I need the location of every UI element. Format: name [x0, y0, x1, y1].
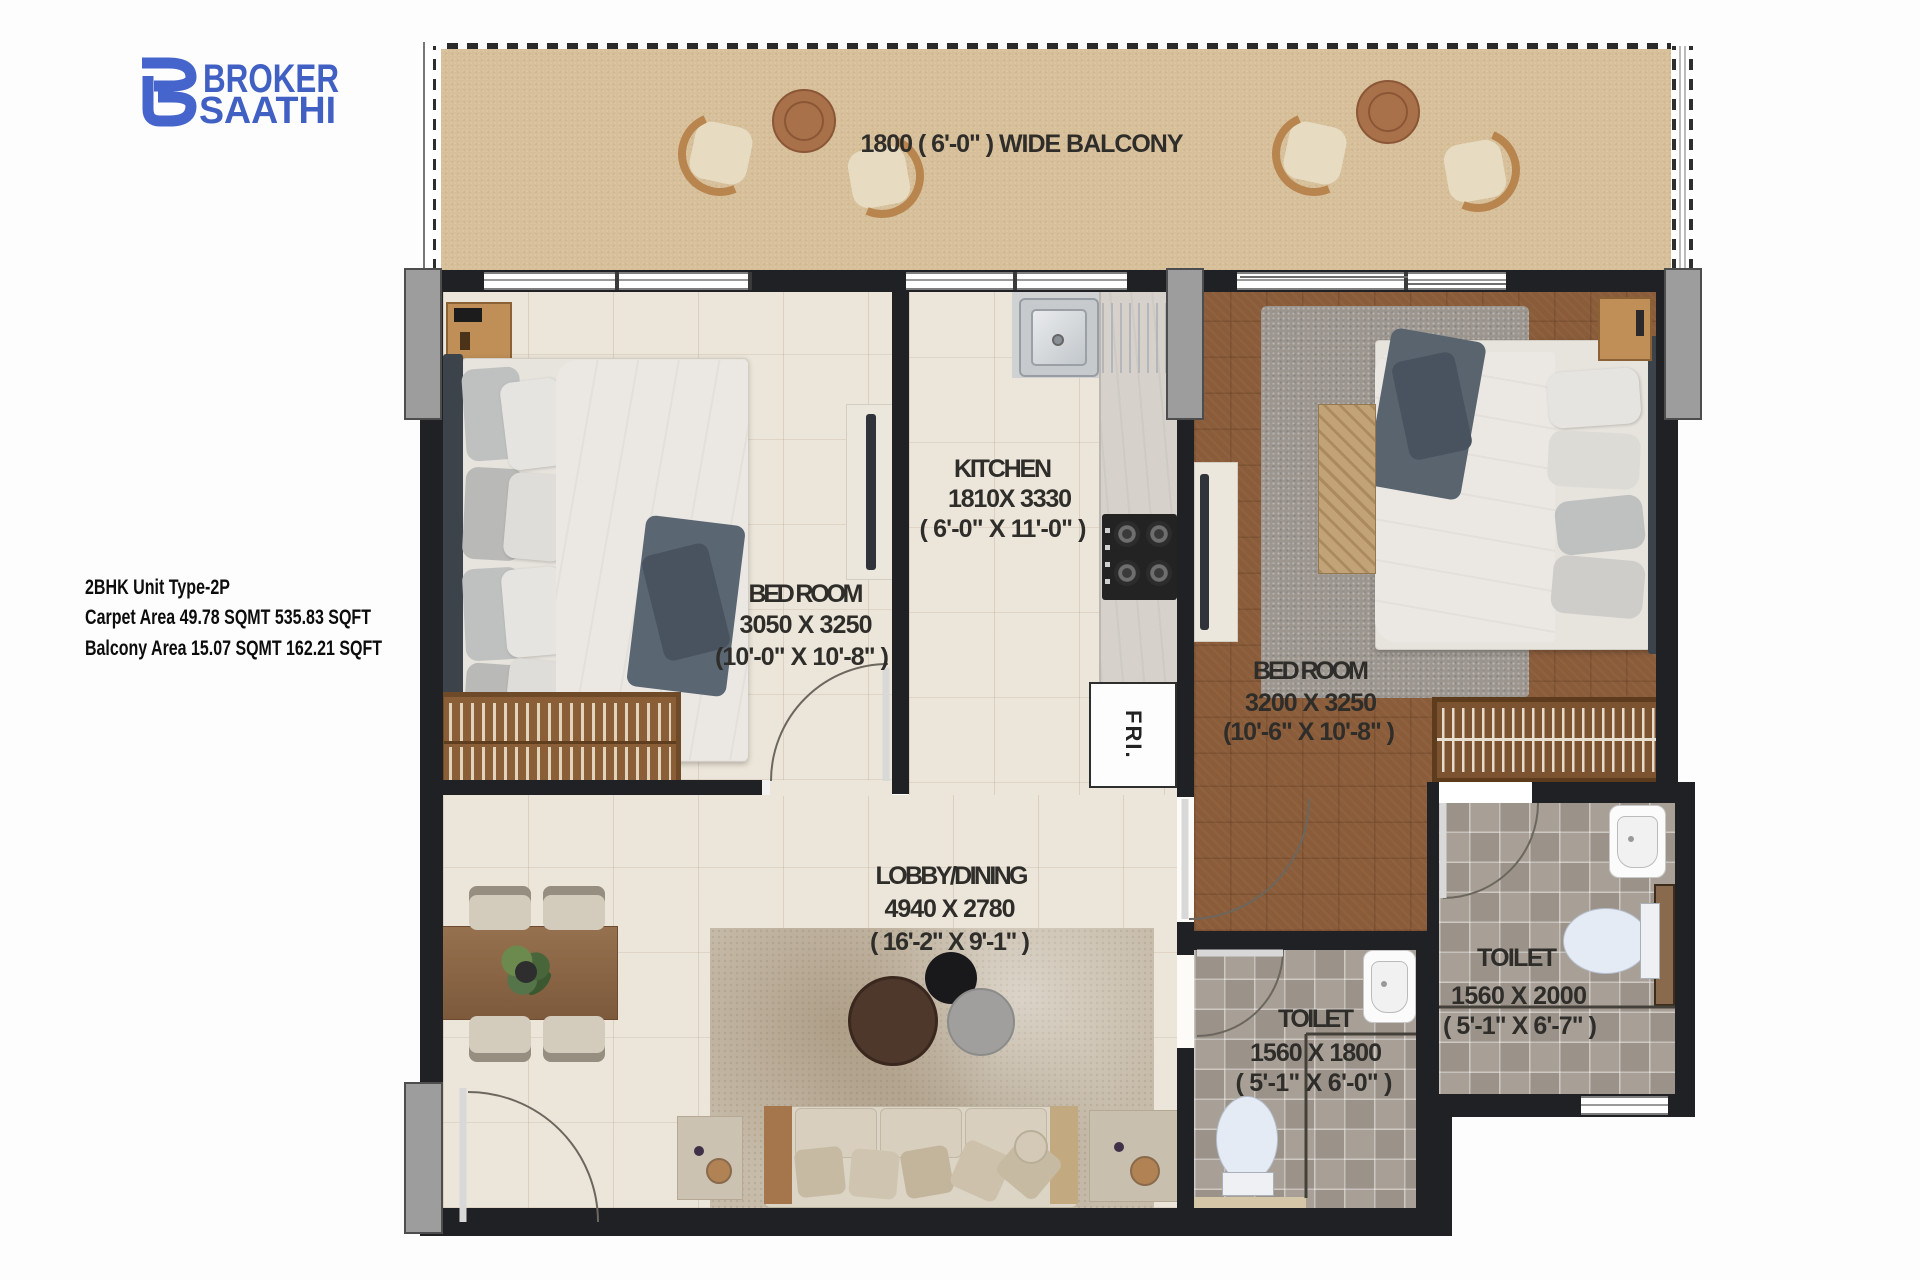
svg-text:BED ROOM: BED ROOM	[749, 580, 864, 608]
svg-text:1810X 3330: 1810X 3330	[948, 485, 1072, 513]
svg-text:TOILET: TOILET	[1278, 1005, 1354, 1033]
svg-text:( 5'-1" X 6'-7" ): ( 5'-1" X 6'-7" )	[1443, 1012, 1597, 1040]
svg-text:1800 ( 6'-0" ) WIDE BALCONY: 1800 ( 6'-0" ) WIDE BALCONY	[861, 130, 1184, 158]
svg-text:( 6'-0" X 11'-0" ): ( 6'-0" X 11'-0" )	[920, 515, 1087, 543]
svg-text:BED ROOM: BED ROOM	[1253, 657, 1369, 685]
svg-text:(10'-6" X 10'-8" ): (10'-6" X 10'-8" )	[1223, 718, 1395, 746]
svg-text:1560 X 2000: 1560 X 2000	[1451, 982, 1587, 1010]
svg-text:3200 X 3250: 3200 X 3250	[1245, 689, 1377, 717]
svg-text:TOILET: TOILET	[1477, 944, 1557, 972]
svg-text:1560 X 1800: 1560 X 1800	[1250, 1039, 1382, 1067]
svg-text:KITCHEN: KITCHEN	[954, 455, 1052, 483]
svg-text:( 16'-2" X 9'-1" ): ( 16'-2" X 9'-1" )	[870, 928, 1030, 956]
svg-text:3050 X 3250: 3050 X 3250	[740, 611, 873, 639]
svg-text:(10'-0" X 10'-8" ): (10'-0" X 10'-8" )	[715, 643, 889, 671]
svg-text:LOBBY/DINING: LOBBY/DINING	[876, 862, 1029, 890]
svg-text:( 5'-1" X 6'-0" ): ( 5'-1" X 6'-0" )	[1236, 1069, 1393, 1097]
svg-text:4940 X 2780: 4940 X 2780	[885, 895, 1016, 923]
